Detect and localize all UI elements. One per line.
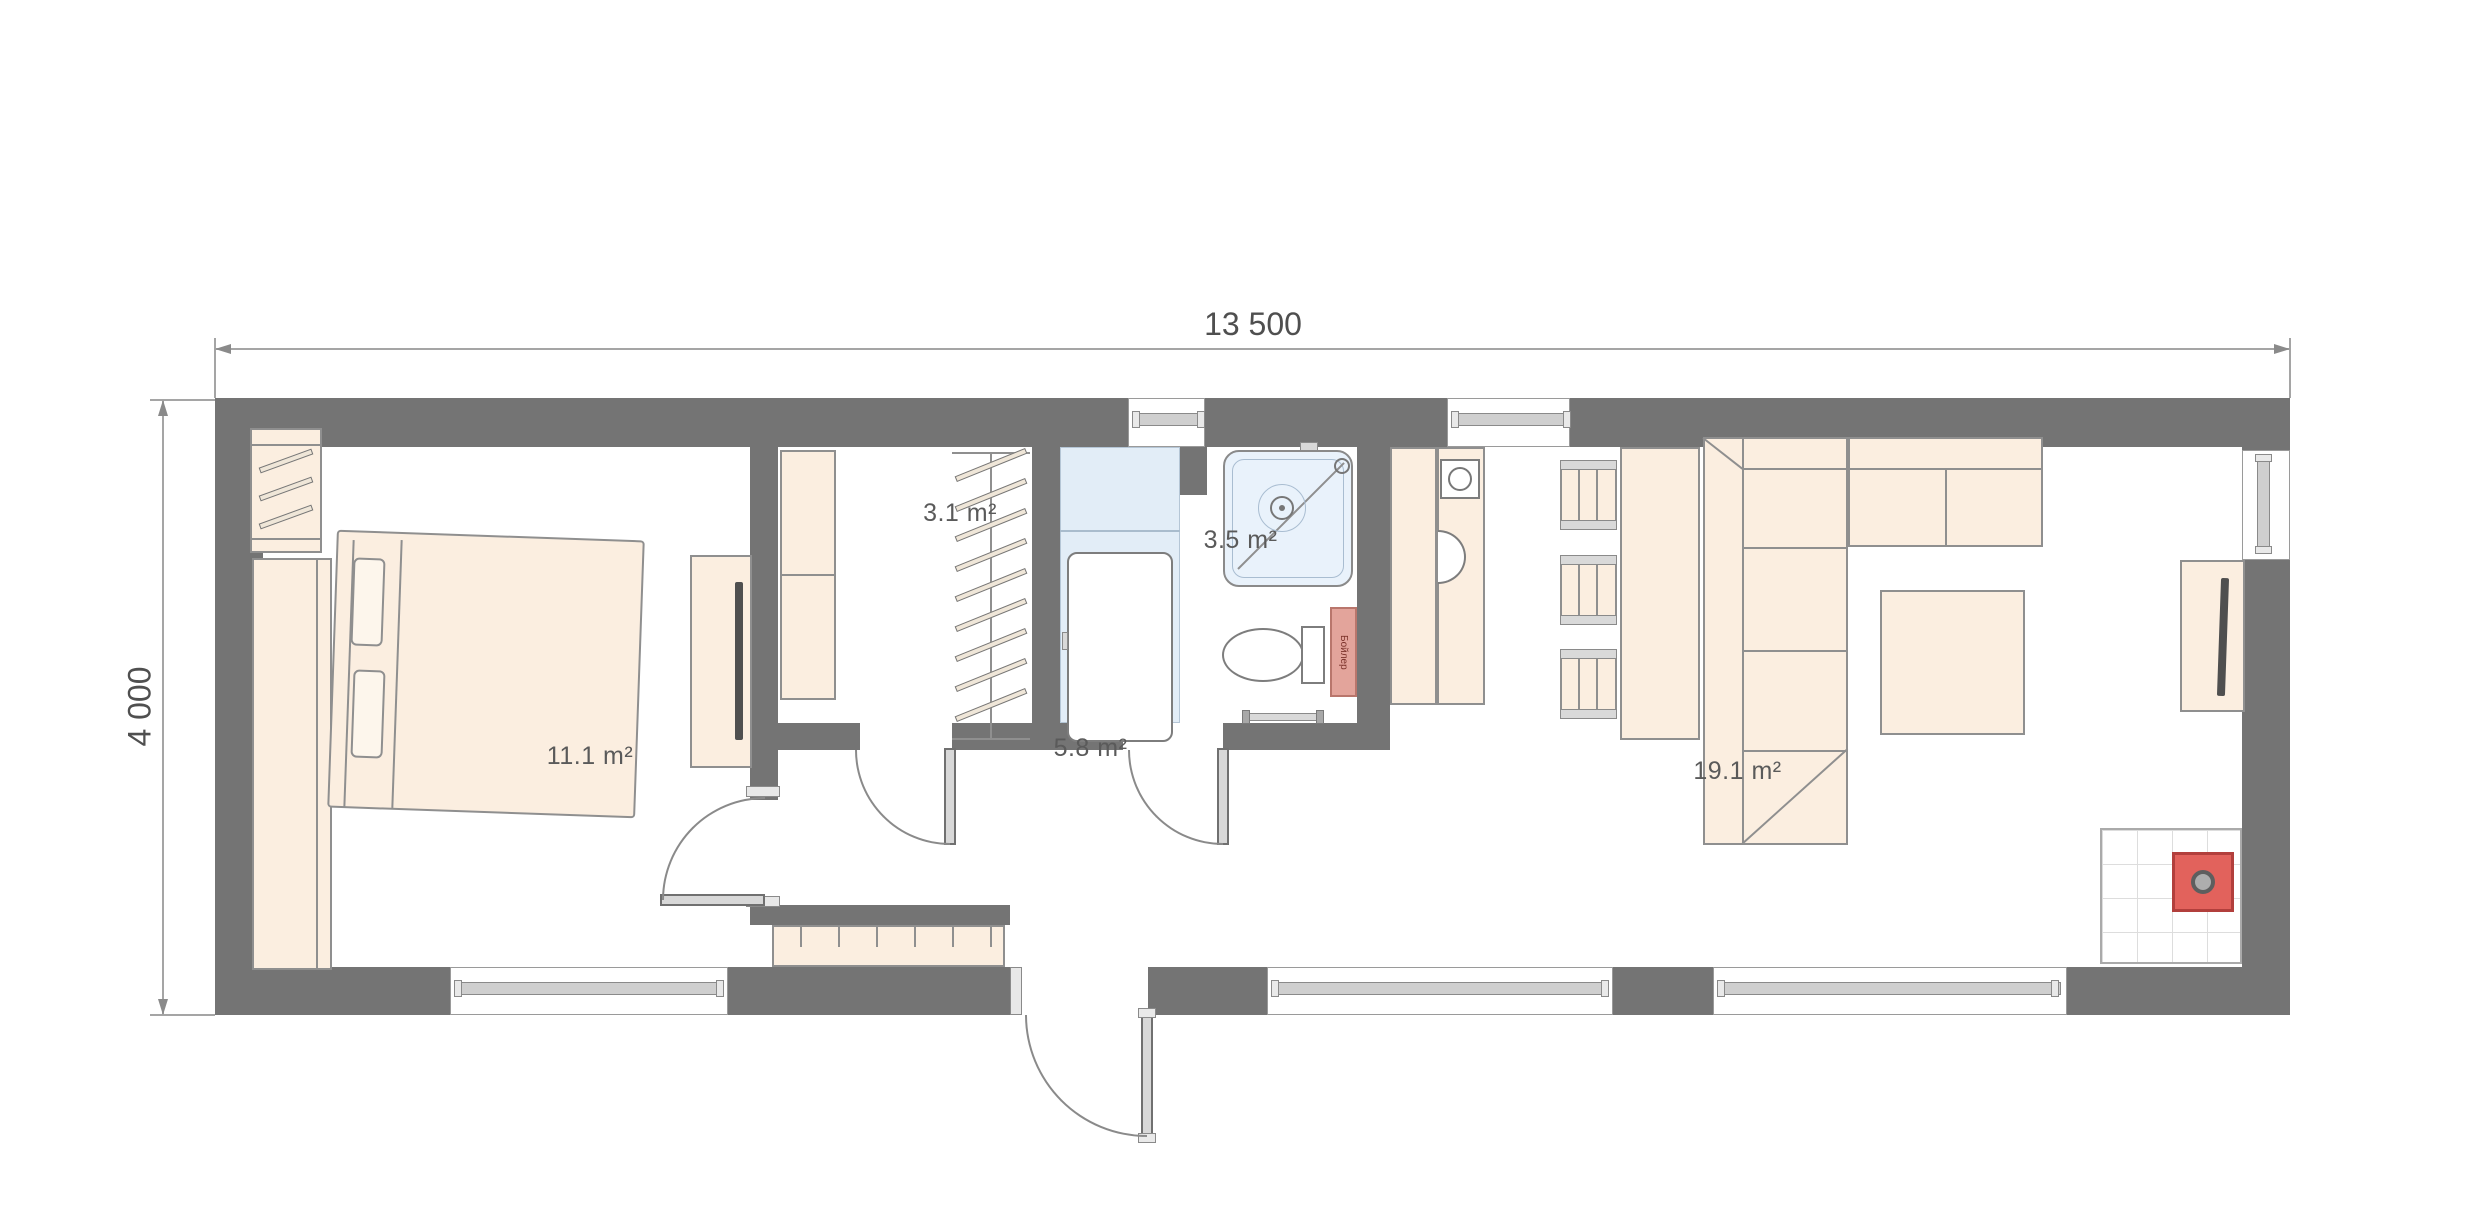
window-bottom-1-hinge-a — [454, 980, 462, 997]
towel-rail-end-b — [1316, 710, 1324, 724]
bar-stool-3-cap-bottom — [1560, 709, 1617, 719]
room-label-bedroom-area: 11.1 m² — [490, 742, 690, 771]
dim-arrow-left-top — [158, 400, 168, 416]
window-right-hinge-a — [2255, 454, 2272, 462]
bedroom-door-jamb-a — [746, 786, 780, 797]
dim-line-left — [162, 400, 164, 1015]
bedroom-wardrobe — [252, 558, 332, 970]
bar-stool-1 — [1560, 463, 1617, 527]
sofa-seat-div-4 — [1945, 470, 1947, 547]
bar-stool-1-cap-top — [1560, 460, 1617, 470]
window-bottom-1-hinge-b — [716, 980, 724, 997]
wall-bath-band-3 — [1223, 723, 1390, 750]
shower-head — [1300, 442, 1318, 451]
window-bottom-3-sash — [1719, 982, 2061, 995]
dim-arrow-top-left — [215, 344, 231, 354]
wall-top-1 — [215, 398, 1128, 447]
bedroom-door-arc — [662, 797, 765, 900]
bar-stool-1-slat-b — [1596, 470, 1598, 520]
room-label-wardrobe-area: 3.1 m² — [885, 499, 1035, 528]
wall-top-2 — [1205, 398, 1447, 447]
bar-table — [1620, 447, 1700, 740]
hall-bench-hook-6 — [990, 927, 992, 947]
towel-rail-end-a — [1242, 710, 1250, 724]
window-top-2-hinge-b — [1563, 411, 1571, 428]
bar-stool-2-slat-b — [1596, 565, 1598, 615]
boiler-label: Бойлер — [1330, 607, 1357, 697]
window-bottom-1-sash — [456, 982, 722, 995]
sofa-back-line-h — [1742, 468, 2043, 470]
sofa-seat-div-1 — [1744, 547, 1848, 549]
coffee-table — [1880, 590, 2025, 735]
shower-sprinkler-arc — [1258, 484, 1306, 532]
wall-right-top — [2242, 398, 2290, 450]
sofa-seat-div-2 — [1744, 650, 1848, 652]
dim-arrow-top-right — [2274, 344, 2290, 354]
wall-partition-bedroom — [750, 447, 778, 800]
wall-bottom-4 — [1613, 967, 1713, 1015]
window-top-2-hinge-a — [1451, 411, 1459, 428]
shower-knob — [1334, 458, 1350, 474]
laundry-cabinet — [1067, 552, 1173, 742]
laundry-cabinet-handle — [1062, 632, 1068, 650]
kitchen-counter-1 — [1390, 447, 1437, 705]
bar-stool-3 — [1560, 652, 1617, 716]
entrance-door-jamb-a — [1010, 967, 1022, 1015]
wardrobe-door-arc — [855, 750, 950, 845]
hall-bench-hook-1 — [800, 927, 802, 947]
window-bottom-3-hinge-b — [2051, 980, 2059, 997]
window-top-2-sash — [1453, 413, 1564, 426]
window-right-sash — [2257, 456, 2270, 554]
entrance-door-arc — [1025, 1015, 1147, 1137]
bar-stool-1-slat-a — [1578, 470, 1580, 520]
floor-plan-canvas: 13 500 4 000 11.1 m² 3.1 m² 3.5 m² 5.8 m… — [0, 0, 2482, 1228]
wall-bath-band-1 — [778, 723, 860, 750]
wall-bottom-5 — [2067, 967, 2290, 1015]
towel-rail — [1244, 713, 1322, 721]
hall-bench-hook-5 — [952, 927, 954, 947]
wall-bottom-2 — [728, 967, 1020, 1015]
hall-bench-hook-4 — [914, 927, 916, 947]
window-right-hinge-b — [2255, 546, 2272, 554]
room-label-bathroom-area: 3.5 m² — [1163, 526, 1318, 555]
window-bottom-2-hinge-b — [1601, 980, 1609, 997]
dimension-height-label: 4 000 — [122, 627, 159, 787]
floor-plan — [0, 0, 2482, 1228]
hall-bench — [772, 925, 1005, 967]
sofa-seat-div-3 — [1744, 750, 1848, 752]
bar-stool-2-slat-a — [1578, 565, 1580, 615]
wall-stub-hall — [750, 905, 1010, 925]
window-top-1-hinge-a — [1132, 411, 1140, 428]
bed-pillow-1 — [350, 557, 385, 646]
window-top-1-sash — [1134, 413, 1199, 426]
stove-burner — [2191, 870, 2215, 894]
window-top-1-hinge-b — [1197, 411, 1205, 428]
bedroom-closet-shelf-bottom — [252, 538, 320, 540]
bedroom-closet-shelf-top — [252, 444, 320, 446]
dimension-width-label: 13 500 — [1103, 306, 1403, 343]
dim-arrow-left-bottom — [158, 999, 168, 1015]
wall-bottom-3 — [1148, 967, 1267, 1015]
hall-bench-hook-3 — [876, 927, 878, 947]
bedroom-tv — [735, 582, 743, 740]
wall-niche-stub — [1180, 447, 1207, 495]
dim-line-top — [215, 348, 2290, 350]
bed-pillow-2 — [350, 669, 385, 758]
toilet-tank — [1301, 626, 1325, 684]
wardrobe-cabinet-line — [780, 574, 836, 576]
wall-wardrobe-right — [1032, 447, 1060, 723]
bar-stool-3-slat-b — [1596, 659, 1598, 709]
hall-bench-hook-2 — [838, 927, 840, 947]
laundry-niche-shelf — [1060, 530, 1180, 532]
bar-stool-2 — [1560, 558, 1617, 622]
wall-right-bottom — [2242, 560, 2290, 1015]
wall-bath-right — [1357, 447, 1390, 723]
room-label-hallway-area: 5.8 m² — [1013, 734, 1168, 763]
wall-bottom-1 — [215, 967, 450, 1015]
window-bottom-2-sash — [1273, 982, 1607, 995]
window-bottom-3-hinge-a — [1717, 980, 1725, 997]
bar-stool-3-cap-top — [1560, 649, 1617, 659]
bar-stool-1-cap-bottom — [1560, 520, 1617, 530]
bathroom-door-arc — [1128, 750, 1223, 845]
washing-machine-drum — [1448, 467, 1472, 491]
bar-stool-3-slat-a — [1578, 659, 1580, 709]
bar-stool-2-cap-top — [1560, 555, 1617, 565]
toilet-bowl — [1222, 628, 1304, 682]
window-bottom-2-hinge-a — [1271, 980, 1279, 997]
tv-stand-living — [2180, 560, 2245, 712]
bedroom-wardrobe-line — [316, 560, 318, 968]
bar-stool-2-cap-bottom — [1560, 615, 1617, 625]
room-label-living-area: 19.1 m² — [1635, 757, 1840, 786]
